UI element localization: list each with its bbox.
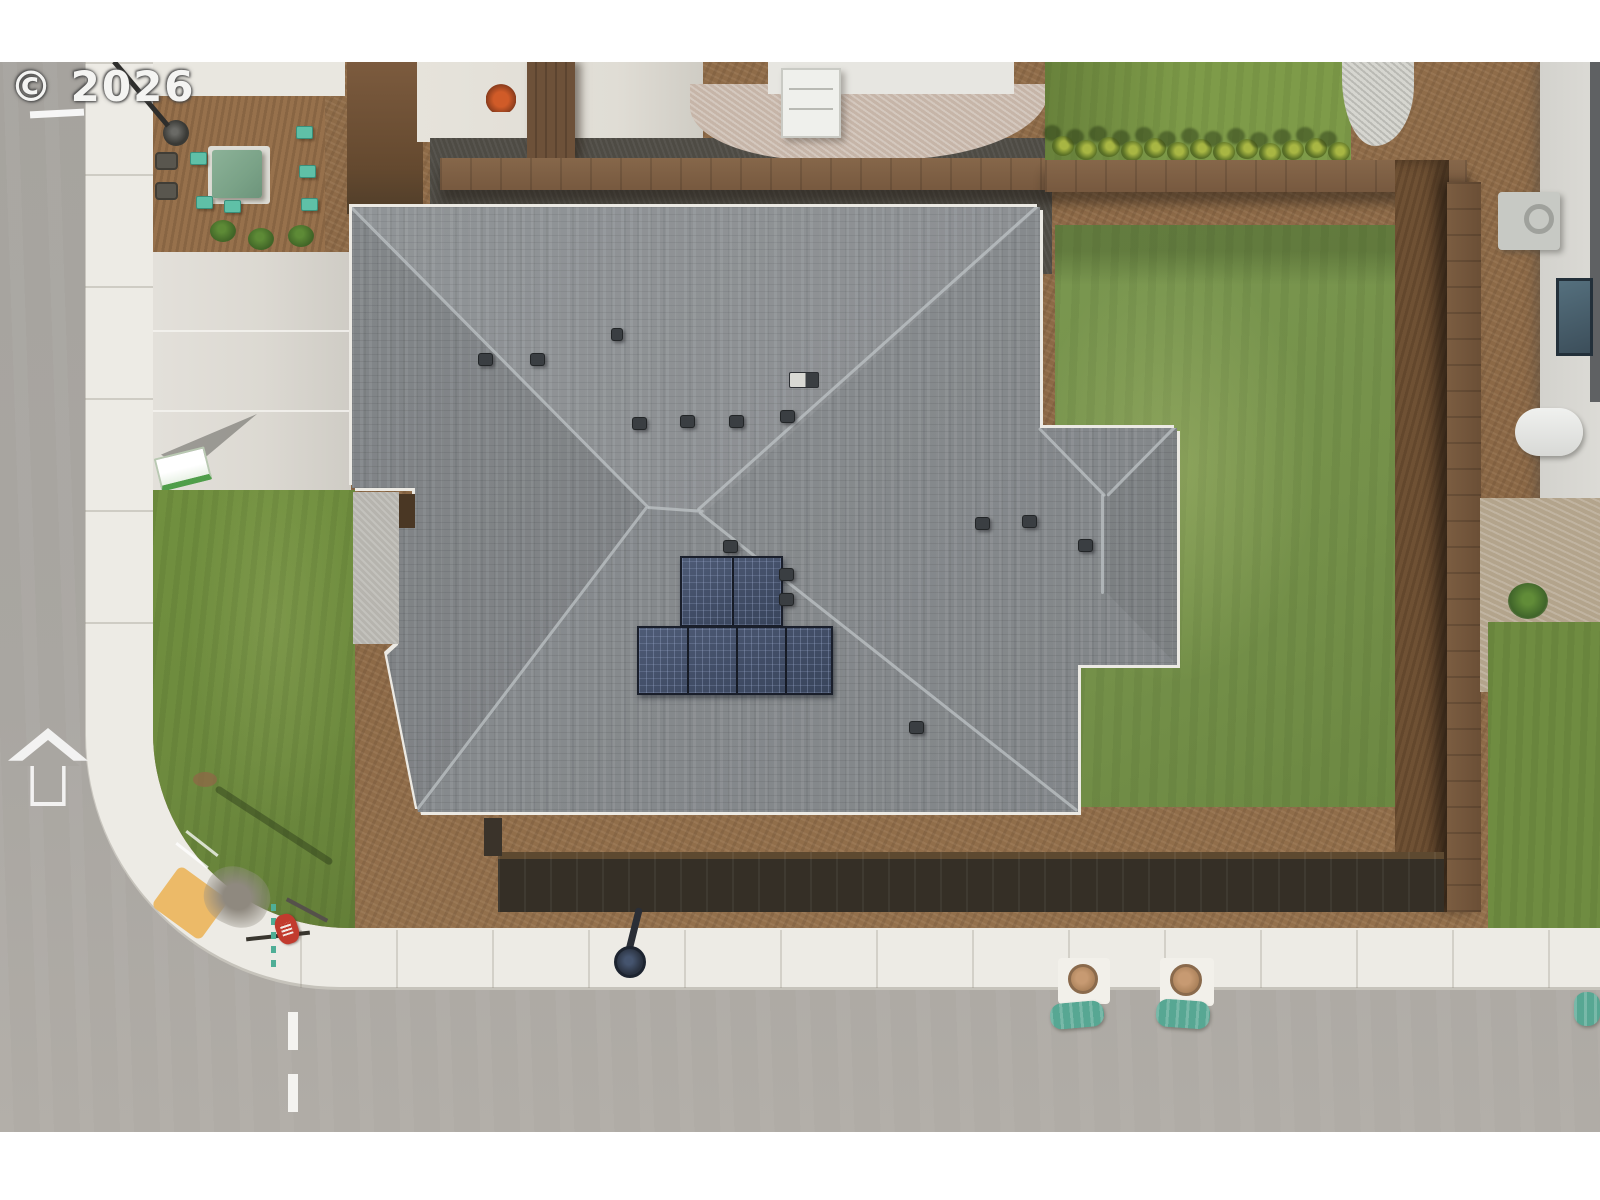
fence-section-vertical xyxy=(527,62,575,160)
roof-vent xyxy=(909,721,924,734)
arborvitae xyxy=(1144,138,1166,158)
arborvitae xyxy=(1098,137,1120,157)
shrub xyxy=(288,225,314,247)
roof-vent xyxy=(1022,515,1037,528)
sidewalk-joints-vertical xyxy=(85,62,155,702)
front-lawn xyxy=(153,490,355,928)
pole-shadow xyxy=(214,785,334,866)
sidewalk-joints-horizontal xyxy=(300,930,1600,988)
roof-vent xyxy=(632,417,647,430)
streetlight-head xyxy=(614,946,646,978)
panel-seam xyxy=(785,628,787,693)
erosion-wattle xyxy=(1049,1000,1105,1031)
ac-fan xyxy=(1524,204,1554,234)
road-dashed-line xyxy=(288,1012,298,1132)
shrub xyxy=(248,228,274,250)
shrub xyxy=(210,220,236,242)
neighbor-window xyxy=(1556,278,1593,356)
wing-hip-ridge xyxy=(1038,427,1106,497)
mulch-border-right xyxy=(1395,160,1449,912)
chimney-vent xyxy=(789,372,819,388)
utility-box-teal xyxy=(224,200,241,213)
panel-seam xyxy=(732,558,734,625)
stop-sign-text xyxy=(279,922,293,937)
bare-spot xyxy=(193,772,217,787)
manhole-cover xyxy=(1068,964,1098,994)
arborvitae xyxy=(1190,139,1212,159)
neighbor-lawn-lower xyxy=(1488,622,1600,928)
solar-array-top xyxy=(680,556,783,627)
shrub xyxy=(1508,583,1548,619)
letterbox-bottom xyxy=(0,1132,1600,1200)
side-fence-right xyxy=(1447,182,1481,912)
fence-return xyxy=(484,818,502,856)
roof-vent xyxy=(729,415,744,428)
back-fence-left xyxy=(440,158,1048,190)
rooftop-unit xyxy=(781,68,841,138)
arborvitae xyxy=(1305,138,1327,158)
utility-box-teal xyxy=(190,152,207,165)
panel-seam xyxy=(687,628,689,693)
utility-box-teal xyxy=(301,198,318,211)
utility-box-teal xyxy=(296,126,313,139)
arborvitae xyxy=(1167,142,1189,162)
roof-vent xyxy=(611,328,623,341)
roof-vent xyxy=(530,353,545,366)
driveway-joint xyxy=(153,410,351,412)
wing-ridge xyxy=(1101,494,1104,594)
letterbox-top xyxy=(0,0,1600,62)
roof-vent xyxy=(1078,539,1093,552)
ac-unit xyxy=(1498,192,1560,250)
entry-porch xyxy=(353,492,399,644)
roof-vent xyxy=(779,568,794,581)
equipment-saw xyxy=(486,84,516,112)
arborvitae xyxy=(1282,140,1304,160)
aerial-photo: © 2026 xyxy=(0,0,1600,1200)
roof-vent xyxy=(723,540,738,553)
arborvitae xyxy=(1328,142,1350,162)
roof-vent xyxy=(680,415,695,428)
erosion-wattle xyxy=(1574,992,1600,1026)
panel-seam xyxy=(736,628,738,693)
roof-vent xyxy=(975,517,990,530)
copyright-watermark: © 2026 xyxy=(10,62,196,111)
mulch-wedge xyxy=(347,62,423,214)
arborvitae xyxy=(1236,139,1258,159)
roof-vent xyxy=(779,593,794,606)
roof-vent xyxy=(780,410,795,423)
front-fence-bottom xyxy=(498,852,1444,912)
door-mat xyxy=(399,494,415,528)
roof-vent xyxy=(478,353,493,366)
utility-plate xyxy=(155,152,178,170)
water-tank xyxy=(1515,408,1583,456)
utility-plate xyxy=(155,182,178,200)
arborvitae xyxy=(1121,141,1143,161)
utility-box-teal xyxy=(196,196,213,209)
arborvitae xyxy=(1052,136,1074,156)
solar-array-bottom xyxy=(637,626,833,695)
manhole-cover xyxy=(1170,964,1202,996)
erosion-wattle xyxy=(1155,998,1211,1030)
driveway-joint xyxy=(153,330,351,332)
white-gravel-patch xyxy=(1342,62,1414,146)
marking-flags xyxy=(271,904,276,968)
transformer-box xyxy=(212,150,262,198)
arborvitae xyxy=(1213,142,1235,162)
arborvitae xyxy=(1075,140,1097,160)
utility-box-teal xyxy=(299,165,316,178)
photo-area xyxy=(0,62,1600,1132)
